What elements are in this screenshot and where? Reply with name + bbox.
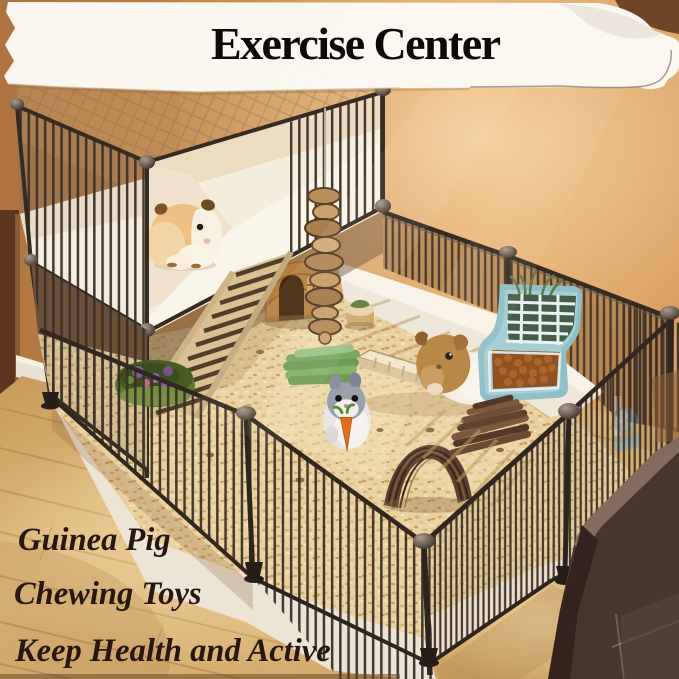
svg-text:Keep Health and Active: Keep Health and Active — [14, 633, 331, 669]
svg-text:Guinea Pig: Guinea Pig — [18, 522, 171, 558]
svg-text:Exercise Center: Exercise Center — [211, 18, 501, 69]
svg-text:Chewing Toys: Chewing Toys — [14, 576, 202, 612]
